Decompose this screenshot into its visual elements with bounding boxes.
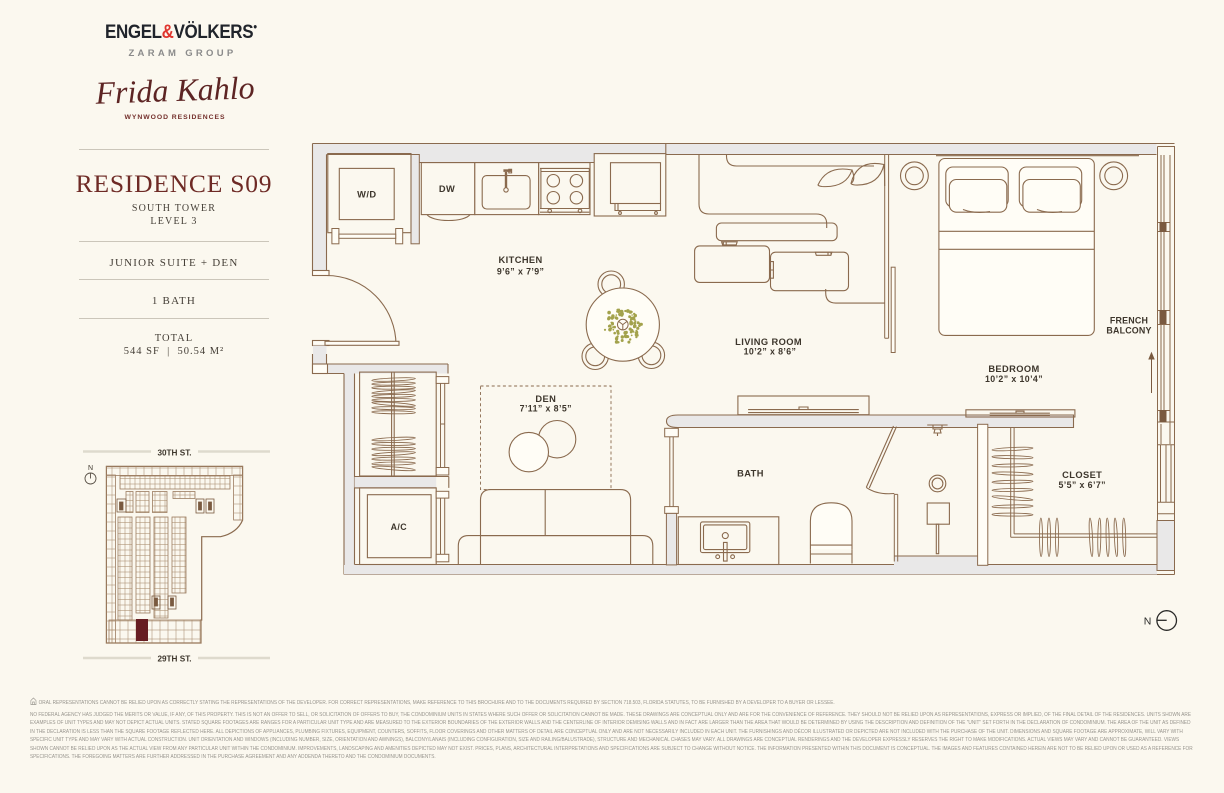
svg-text:7’11” x 8’5”: 7’11” x 8’5” <box>520 404 572 414</box>
svg-text:KITCHEN: KITCHEN <box>499 255 543 265</box>
svg-text:DW: DW <box>439 184 455 194</box>
svg-text:DEN: DEN <box>535 394 556 404</box>
svg-text:CLOSET: CLOSET <box>1062 470 1102 480</box>
svg-text:A/C: A/C <box>391 522 408 532</box>
svg-text:10’2” x 8’6”: 10’2” x 8’6” <box>744 347 797 357</box>
svg-text:W/D: W/D <box>357 190 376 200</box>
svg-text:BEDROOM: BEDROOM <box>988 364 1039 374</box>
svg-text:N: N <box>1144 616 1152 628</box>
svg-text:BATH: BATH <box>737 469 764 479</box>
svg-text:29TH ST.: 29TH ST. <box>157 655 191 664</box>
svg-text:N: N <box>88 465 93 472</box>
svg-text:9’6” x 7’9”: 9’6” x 7’9” <box>497 267 544 277</box>
svg-text:30TH ST.: 30TH ST. <box>157 449 191 458</box>
svg-text:LIVING ROOM: LIVING ROOM <box>735 337 802 347</box>
svg-text:FRENCH: FRENCH <box>1110 316 1148 326</box>
svg-text:BALCONY: BALCONY <box>1106 326 1151 336</box>
svg-text:10’2” x 10’4”: 10’2” x 10’4” <box>985 374 1043 384</box>
svg-text:5’5” x 6’7”: 5’5” x 6’7” <box>1058 480 1105 490</box>
